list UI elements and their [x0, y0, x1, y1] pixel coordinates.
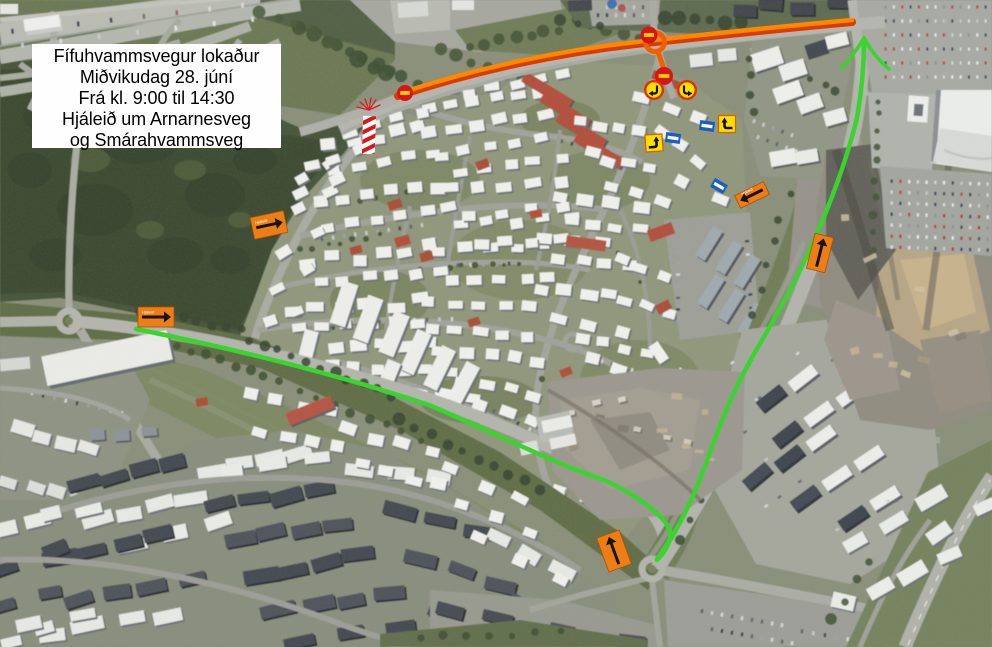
svg-text:Hjáleið: Hjáleið	[142, 310, 155, 315]
